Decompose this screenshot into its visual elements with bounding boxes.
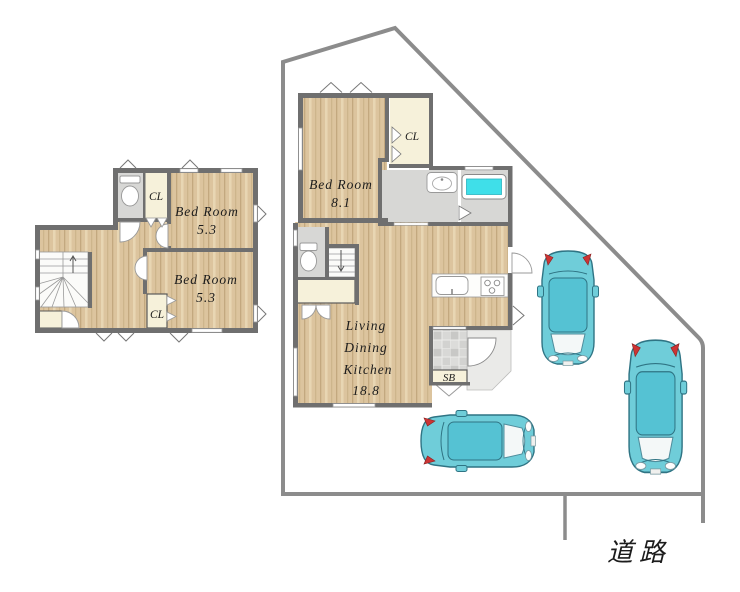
car-top [538,251,599,366]
f2-bedroom-bottom-label: Bed Room [174,272,238,287]
f2-closet-top-label: CL [149,191,163,203]
f1-closet-hall-floor [297,279,355,303]
f1-ldk-label-line1: Living [345,318,387,333]
f1-bedroom-size: 8.1 [331,195,351,210]
f2-stairs [38,252,88,307]
kitchen-stove [481,277,504,296]
f1-genkan-tile [432,330,467,370]
f2-toilet-fixture [120,176,140,206]
f1-bathtub [462,175,506,200]
f2-bedroom-top-label: Bed Room [175,204,239,219]
f1-entry-step-chevron [435,384,463,396]
f1-ldk-size: 18.8 [352,383,380,398]
f1-genkan-step-edge [433,327,466,329]
f1-washroom-sliding-door [394,223,428,226]
bathtub-water [467,179,502,195]
f1-shoebox-label: SB [443,372,456,384]
f1-ldk-label-line2: Dining [343,340,388,355]
f2-bedroom-bottom-size: 5.3 [196,290,216,305]
f1-closet-label: CL [405,131,419,143]
f1-kitchen-counter [432,274,508,297]
floorplan-svg: Bed Room 5.3 Bed Room 5.3 CL CL [0,0,740,592]
f1-ldk-label-line3: Kitchen [343,362,393,377]
f1-side-door-arc [512,253,532,273]
f1-toilet-fixture [300,243,317,271]
f2-bedroom-top-size: 5.3 [197,222,217,237]
f1-washbasin [427,173,457,193]
f2-hall-closet-floor [38,311,62,328]
car-bottom [421,411,536,472]
road-label: 道路 [607,538,671,567]
f2-closet-bottom-label: CL [150,309,164,321]
car-right [624,340,686,474]
second-floor-plan: Bed Room 5.3 Bed Room 5.3 CL CL [35,160,266,342]
floorplan-canvas: Bed Room 5.3 Bed Room 5.3 CL CL [0,0,740,592]
f1-bedroom-label: Bed Room [309,177,373,192]
